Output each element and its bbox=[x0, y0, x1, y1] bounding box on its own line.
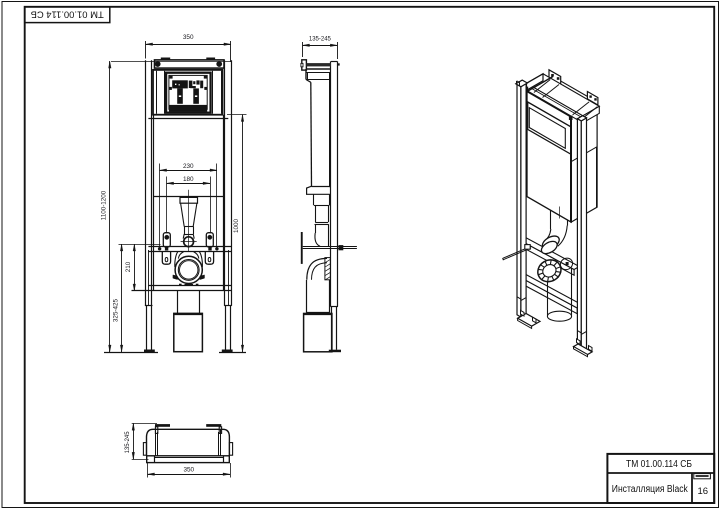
svg-text:ТМ 01.00.114 СБ: ТМ 01.00.114 СБ bbox=[626, 459, 692, 470]
svg-text:325-425: 325-425 bbox=[112, 298, 119, 322]
svg-text:350: 350 bbox=[183, 34, 194, 41]
svg-text:16: 16 bbox=[698, 486, 709, 497]
svg-text:Инсталляция Black: Инсталляция Black bbox=[612, 484, 689, 495]
svg-text:135-245: 135-245 bbox=[309, 36, 332, 42]
svg-text:ТМ 01.00.114 СБ: ТМ 01.00.114 СБ bbox=[31, 9, 104, 19]
svg-text:350: 350 bbox=[183, 467, 194, 474]
svg-text:180: 180 bbox=[183, 176, 194, 183]
svg-text:1100-1200: 1100-1200 bbox=[100, 190, 107, 220]
svg-text:1000: 1000 bbox=[233, 219, 240, 234]
svg-text:230: 230 bbox=[183, 163, 194, 170]
svg-text:210: 210 bbox=[125, 261, 132, 272]
svg-text:135-245: 135-245 bbox=[125, 431, 131, 454]
